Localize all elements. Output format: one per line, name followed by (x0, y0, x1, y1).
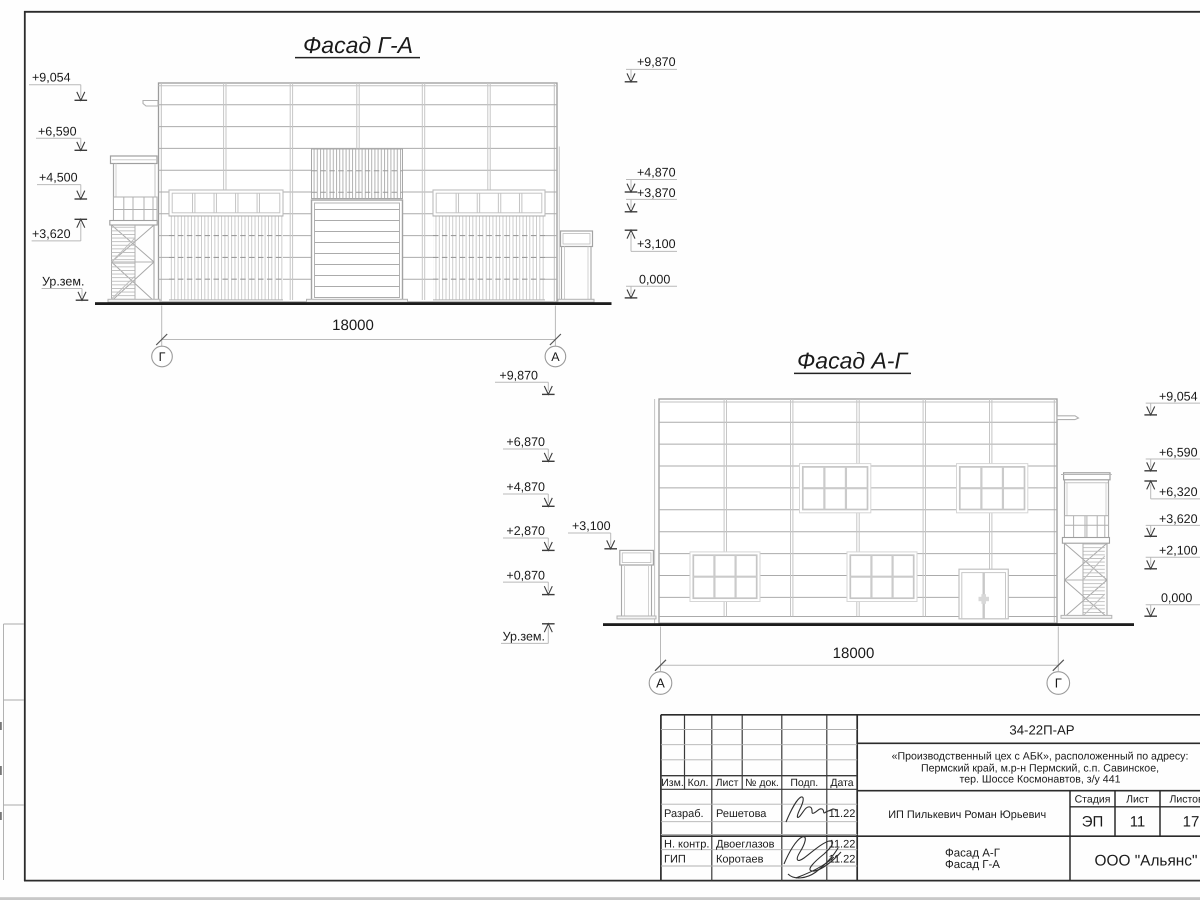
svg-text:ООО "Альянс": ООО "Альянс" (1095, 852, 1198, 869)
svg-text:ЭП: ЭП (1082, 814, 1104, 831)
svg-text:тер. Шоссе Космонавтов, з/у 44: тер. Шоссе Космонавтов, з/у 441 (960, 774, 1121, 786)
svg-text:Г: Г (159, 350, 166, 364)
svg-text:17: 17 (1183, 814, 1200, 831)
svg-text:Фасад А-Г: Фасад А-Г (797, 348, 908, 374)
svg-text:Г: Г (1055, 676, 1062, 691)
svg-text:Лист: Лист (716, 777, 739, 789)
svg-text:+3,620: +3,620 (1159, 512, 1198, 526)
svg-text:34-22П-АР: 34-22П-АР (1009, 722, 1074, 737)
svg-text:+9,870: +9,870 (499, 368, 538, 382)
svg-text:Ур.зем.: Ур.зем. (503, 630, 545, 644)
svg-text:Фасад А-Г: Фасад А-Г (945, 848, 1001, 860)
svg-text:+9,870: +9,870 (637, 55, 676, 69)
svg-text:+3,620: +3,620 (32, 227, 71, 241)
svg-text:0,000: 0,000 (1161, 591, 1192, 605)
svg-text:Решетова: Решетова (716, 808, 767, 820)
svg-text:+6,870: +6,870 (506, 435, 545, 449)
svg-text:№ док.: № док. (745, 777, 779, 789)
svg-text:11: 11 (1130, 814, 1146, 831)
svg-text:Двоеглазов: Двоеглазов (716, 838, 775, 850)
svg-text:+4,870: +4,870 (506, 480, 545, 494)
svg-text:+3,870: +3,870 (637, 186, 676, 200)
svg-text:«Производственный цех с АБК»,: «Производственный цех с АБК», расположен… (892, 750, 1189, 762)
svg-text:Листов: Листов (1169, 794, 1200, 806)
svg-text:18000: 18000 (833, 645, 875, 662)
svg-text:+6,590: +6,590 (1159, 446, 1198, 460)
svg-text:+4,500: +4,500 (39, 171, 78, 185)
svg-text:+6,320: +6,320 (1159, 485, 1198, 499)
svg-text:Ур.зем.: Ур.зем. (42, 274, 84, 288)
svg-text:Н. контр.: Н. контр. (664, 838, 709, 850)
svg-text:+2,870: +2,870 (506, 524, 545, 538)
svg-text:+9,054: +9,054 (1159, 389, 1198, 403)
svg-text:0,000: 0,000 (639, 272, 670, 286)
svg-text:+2,100: +2,100 (1159, 544, 1198, 558)
svg-text:Фасад Г-А: Фасад Г-А (945, 859, 1000, 871)
svg-text:Фасад Г-А: Фасад Г-А (303, 32, 413, 58)
svg-text:А: А (551, 350, 560, 364)
svg-text:Кол.: Кол. (688, 777, 709, 789)
svg-text:+6,590: +6,590 (38, 124, 77, 138)
svg-text:Дата: Дата (830, 777, 853, 789)
svg-text:Лист: Лист (1126, 794, 1149, 806)
svg-text:+9,054: +9,054 (32, 71, 71, 85)
svg-text:ИП Пилькевич Роман Юрьевич: ИП Пилькевич Роман Юрьевич (888, 809, 1046, 821)
svg-text:18000: 18000 (332, 317, 374, 334)
svg-text:+0,870: +0,870 (506, 568, 545, 582)
svg-text:+3,100: +3,100 (637, 237, 676, 251)
svg-text:Подп.: Подп. (790, 777, 818, 789)
svg-text:А: А (656, 676, 665, 691)
svg-text:Стадия: Стадия (1075, 794, 1111, 806)
svg-text:Разраб.: Разраб. (664, 808, 704, 820)
svg-text:ГИП: ГИП (664, 854, 686, 866)
svg-text:Коротаев: Коротаев (716, 854, 764, 866)
svg-text:Изм.: Изм. (661, 777, 684, 789)
svg-text:+4,870: +4,870 (637, 166, 676, 180)
svg-text:+3,100: +3,100 (572, 519, 611, 533)
